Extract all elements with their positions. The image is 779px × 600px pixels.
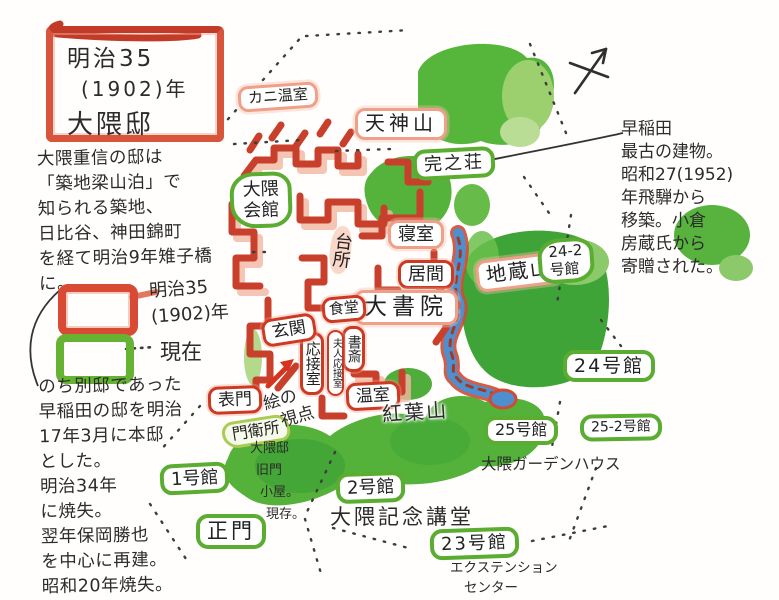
history-line: に焼失。	[40, 498, 184, 526]
label-bldg-2: 2号館	[335, 471, 406, 505]
label-madams-drawing-room: 夫人応接室	[327, 330, 344, 396]
label-bldg-25: 25号館	[484, 416, 558, 445]
bldg-24-2-line: 号館	[549, 260, 584, 280]
intro-line: 知られる築地、	[38, 194, 212, 222]
label-bldg-1: 1号館	[159, 461, 230, 496]
label-tenjinyama: 天神山	[355, 108, 447, 140]
okuma-kaikan-line: 大隈	[242, 178, 279, 200]
history-line: 昭和20年焼失。	[42, 573, 186, 600]
okuma-kaikan-line: 会館	[243, 200, 280, 222]
legend-swatch-1902	[58, 284, 138, 336]
title-line: 明治35	[67, 39, 217, 73]
intro-line: 「築地梁山泊」で	[37, 169, 211, 197]
old-gate-note: 大隈邸 旧門 小屋。 現存。	[250, 438, 305, 526]
history-line: 早稲田の邸を明治	[38, 398, 182, 426]
legend-label-current: 現在	[160, 336, 202, 366]
label-koyozan: 紅葉山	[381, 394, 449, 428]
old-gate-line: 大隈邸	[250, 438, 305, 460]
legend-label-1902: 明治35 (1902)年	[148, 271, 229, 328]
old-gate-line: 小屋。	[260, 482, 305, 504]
label-study: 書斎	[342, 326, 365, 372]
title-box: 明治35 (1902)年 大隈邸	[46, 26, 224, 142]
label-bldg-25-2: 25-2号館	[580, 413, 662, 441]
okuma-residence-map: 明治35 (1902)年 大隈邸 大隈重信の邸は 「築地梁山泊」で 知られる築地…	[0, 0, 779, 600]
intro-line: を経て明治9年雉子橋	[38, 244, 212, 272]
label-bldg-24: 24号館	[563, 350, 655, 382]
intro-line: 大隈重信の邸は	[37, 144, 211, 172]
north-arrow-icon	[570, 49, 608, 93]
title-line: (1902)年	[81, 73, 217, 102]
history-line: を中心に再建。	[41, 548, 185, 576]
old-gate-line: 現存。	[266, 504, 305, 526]
label-bedroom: 寝室	[388, 220, 444, 249]
label-front-gate: 表門	[208, 385, 263, 415]
kanshiso-note-line: 昭和27(1952)	[621, 164, 733, 187]
kanshiso-note-line: 早稲田	[621, 118, 733, 141]
kanshiso-note-line: 移築。小倉	[621, 210, 733, 233]
kanshiso-note-line: 房蔵氏から	[621, 233, 733, 256]
kanshiso-note-line: 寄贈された。	[621, 256, 733, 279]
label-kanshiso: 完之荘	[412, 146, 496, 181]
kanshiso-note-line: 年飛騨から	[621, 187, 733, 210]
label-great-study: 大書院	[354, 290, 458, 325]
label-okuma-garden-house: 大隈ガーデンハウス	[481, 452, 621, 474]
label-okuma-auditorium: 大隈記念講堂	[330, 501, 474, 531]
extension-center-line: センター	[464, 576, 558, 596]
title-line: 大隈邸	[67, 104, 217, 141]
history-line: 翌年保岡勝也	[41, 523, 185, 551]
kanshiso-note: 早稲田 最古の建物。 昭和27(1952) 年飛騨から 移築。小倉 房蔵氏から …	[621, 118, 733, 279]
label-okuma-kaikan: 大隈 会館	[229, 171, 293, 230]
history-line: 17年3月に本邸	[39, 423, 183, 451]
extension-center-line: エクステンション	[450, 556, 558, 576]
old-gate-line: 旧門	[256, 460, 305, 482]
history-line: のち別邸であった	[38, 373, 182, 401]
label-living-room: 居間	[398, 260, 454, 289]
label-bldg-24-2: 24-2 号館	[536, 236, 595, 285]
legend-text: (1902)年	[150, 297, 229, 328]
label-extension-center: エクステンション センター	[450, 556, 558, 596]
label-dining-room: 食堂	[321, 294, 367, 323]
kanshiso-note-line: 最古の建物。	[621, 141, 733, 164]
intro-line: 日比谷、神田錦町	[38, 219, 212, 247]
